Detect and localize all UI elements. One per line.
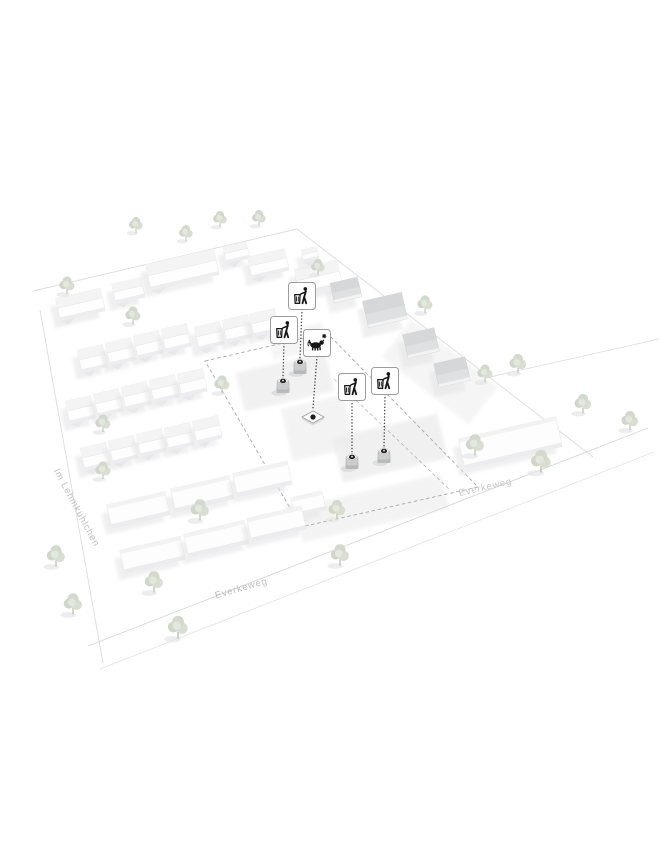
tree	[618, 411, 638, 434]
tree-foliage	[173, 621, 181, 629]
tree	[60, 593, 81, 618]
tree	[506, 354, 526, 377]
tree-shadow	[93, 477, 106, 482]
house-white	[170, 368, 209, 404]
tree-foliage	[578, 399, 585, 406]
tree-foliage	[51, 551, 59, 559]
tree-shadow	[177, 239, 189, 243]
tree-shadow	[250, 224, 262, 228]
page-background: Im Lehmkühlchen Everkeweg Everkeweg	[0, 0, 660, 848]
tree-shadow	[127, 231, 139, 235]
tree-shadow	[43, 564, 59, 570]
tree-shadow	[327, 563, 343, 569]
tree-shadow	[415, 311, 428, 316]
tree	[571, 394, 591, 417]
tree-shadow	[187, 518, 203, 524]
sign-plate	[289, 283, 316, 310]
rowhouse-slab	[240, 506, 308, 548]
tree	[211, 211, 227, 229]
tree	[250, 210, 266, 228]
tree	[43, 545, 64, 570]
tree-foliage	[625, 416, 632, 423]
tree	[127, 217, 143, 235]
tree-shadow	[123, 322, 136, 327]
tree-foliage	[218, 380, 224, 386]
bin-opening-highlight	[299, 361, 301, 363]
tree-shadow	[571, 411, 585, 416]
house-white	[185, 415, 224, 451]
tree-foliage	[314, 263, 320, 269]
tree	[164, 616, 187, 643]
tree	[327, 544, 348, 569]
sign-plate	[339, 374, 366, 401]
house-white	[154, 323, 193, 359]
tree-shadow	[325, 517, 339, 522]
tree-foliage	[513, 359, 520, 366]
ground-shading-layer	[236, 319, 498, 542]
bin-opening-highlight	[383, 450, 385, 452]
tree-foliage	[255, 214, 261, 220]
tree-shadow	[57, 292, 70, 297]
tree-shadow	[164, 636, 181, 642]
tree-shadow	[462, 453, 478, 459]
tree-foliage	[182, 229, 188, 235]
tree-shadow	[212, 391, 225, 396]
bin-opening-highlight	[351, 456, 353, 458]
tree-foliage	[332, 505, 339, 512]
dog-waste-sign	[304, 330, 331, 357]
tree-shadow	[475, 380, 488, 385]
tree-shadow	[309, 273, 321, 277]
tree-foliage	[536, 455, 544, 463]
tree-foliage	[195, 505, 203, 513]
tree-shadow	[93, 430, 106, 435]
tree	[141, 571, 162, 596]
tree	[177, 225, 193, 243]
tree-foliage	[68, 599, 76, 607]
tree-shadow	[506, 371, 520, 376]
bin-opening-highlight	[282, 380, 284, 382]
tree-shadow	[141, 590, 157, 596]
tree-shadow	[60, 612, 76, 618]
house-white	[105, 277, 147, 311]
tree-foliage	[132, 221, 138, 227]
tree-foliage	[216, 215, 222, 221]
tree	[212, 375, 230, 396]
rowhouse-slab	[226, 461, 294, 503]
tree-foliage	[99, 466, 105, 472]
tree-foliage	[129, 311, 135, 317]
sign-plate	[372, 368, 399, 395]
street-label-everkeweg-bottom: Everkeweg	[214, 576, 269, 602]
rowhouse-slab	[177, 520, 251, 564]
litter-bin-sign	[339, 374, 366, 401]
tree-foliage	[63, 281, 69, 287]
site-plan-3d-view: Im Lehmkühlchen Everkeweg Everkeweg	[0, 0, 660, 848]
rowhouse-slab	[100, 492, 172, 535]
tree-foliage	[99, 419, 105, 425]
tree-foliage	[149, 577, 157, 585]
litter-bin-sign	[289, 283, 316, 310]
tree-foliage	[481, 369, 487, 375]
tree	[123, 306, 141, 327]
tree	[415, 295, 433, 316]
tree-foliage	[470, 440, 478, 448]
plate-dot	[310, 414, 315, 419]
tree	[57, 276, 75, 297]
street-label-everkeweg-right: Everkeweg	[458, 476, 513, 499]
litter-bin-sign	[271, 317, 298, 344]
tree-shadow	[527, 470, 544, 476]
sign-plate	[271, 317, 298, 344]
litter-bin-sign	[372, 368, 399, 395]
house-gray-roof	[356, 292, 410, 338]
tree-foliage	[335, 550, 343, 558]
tree-shadow	[211, 225, 223, 229]
tree-shadow	[618, 428, 632, 433]
tree-foliage	[421, 300, 427, 306]
